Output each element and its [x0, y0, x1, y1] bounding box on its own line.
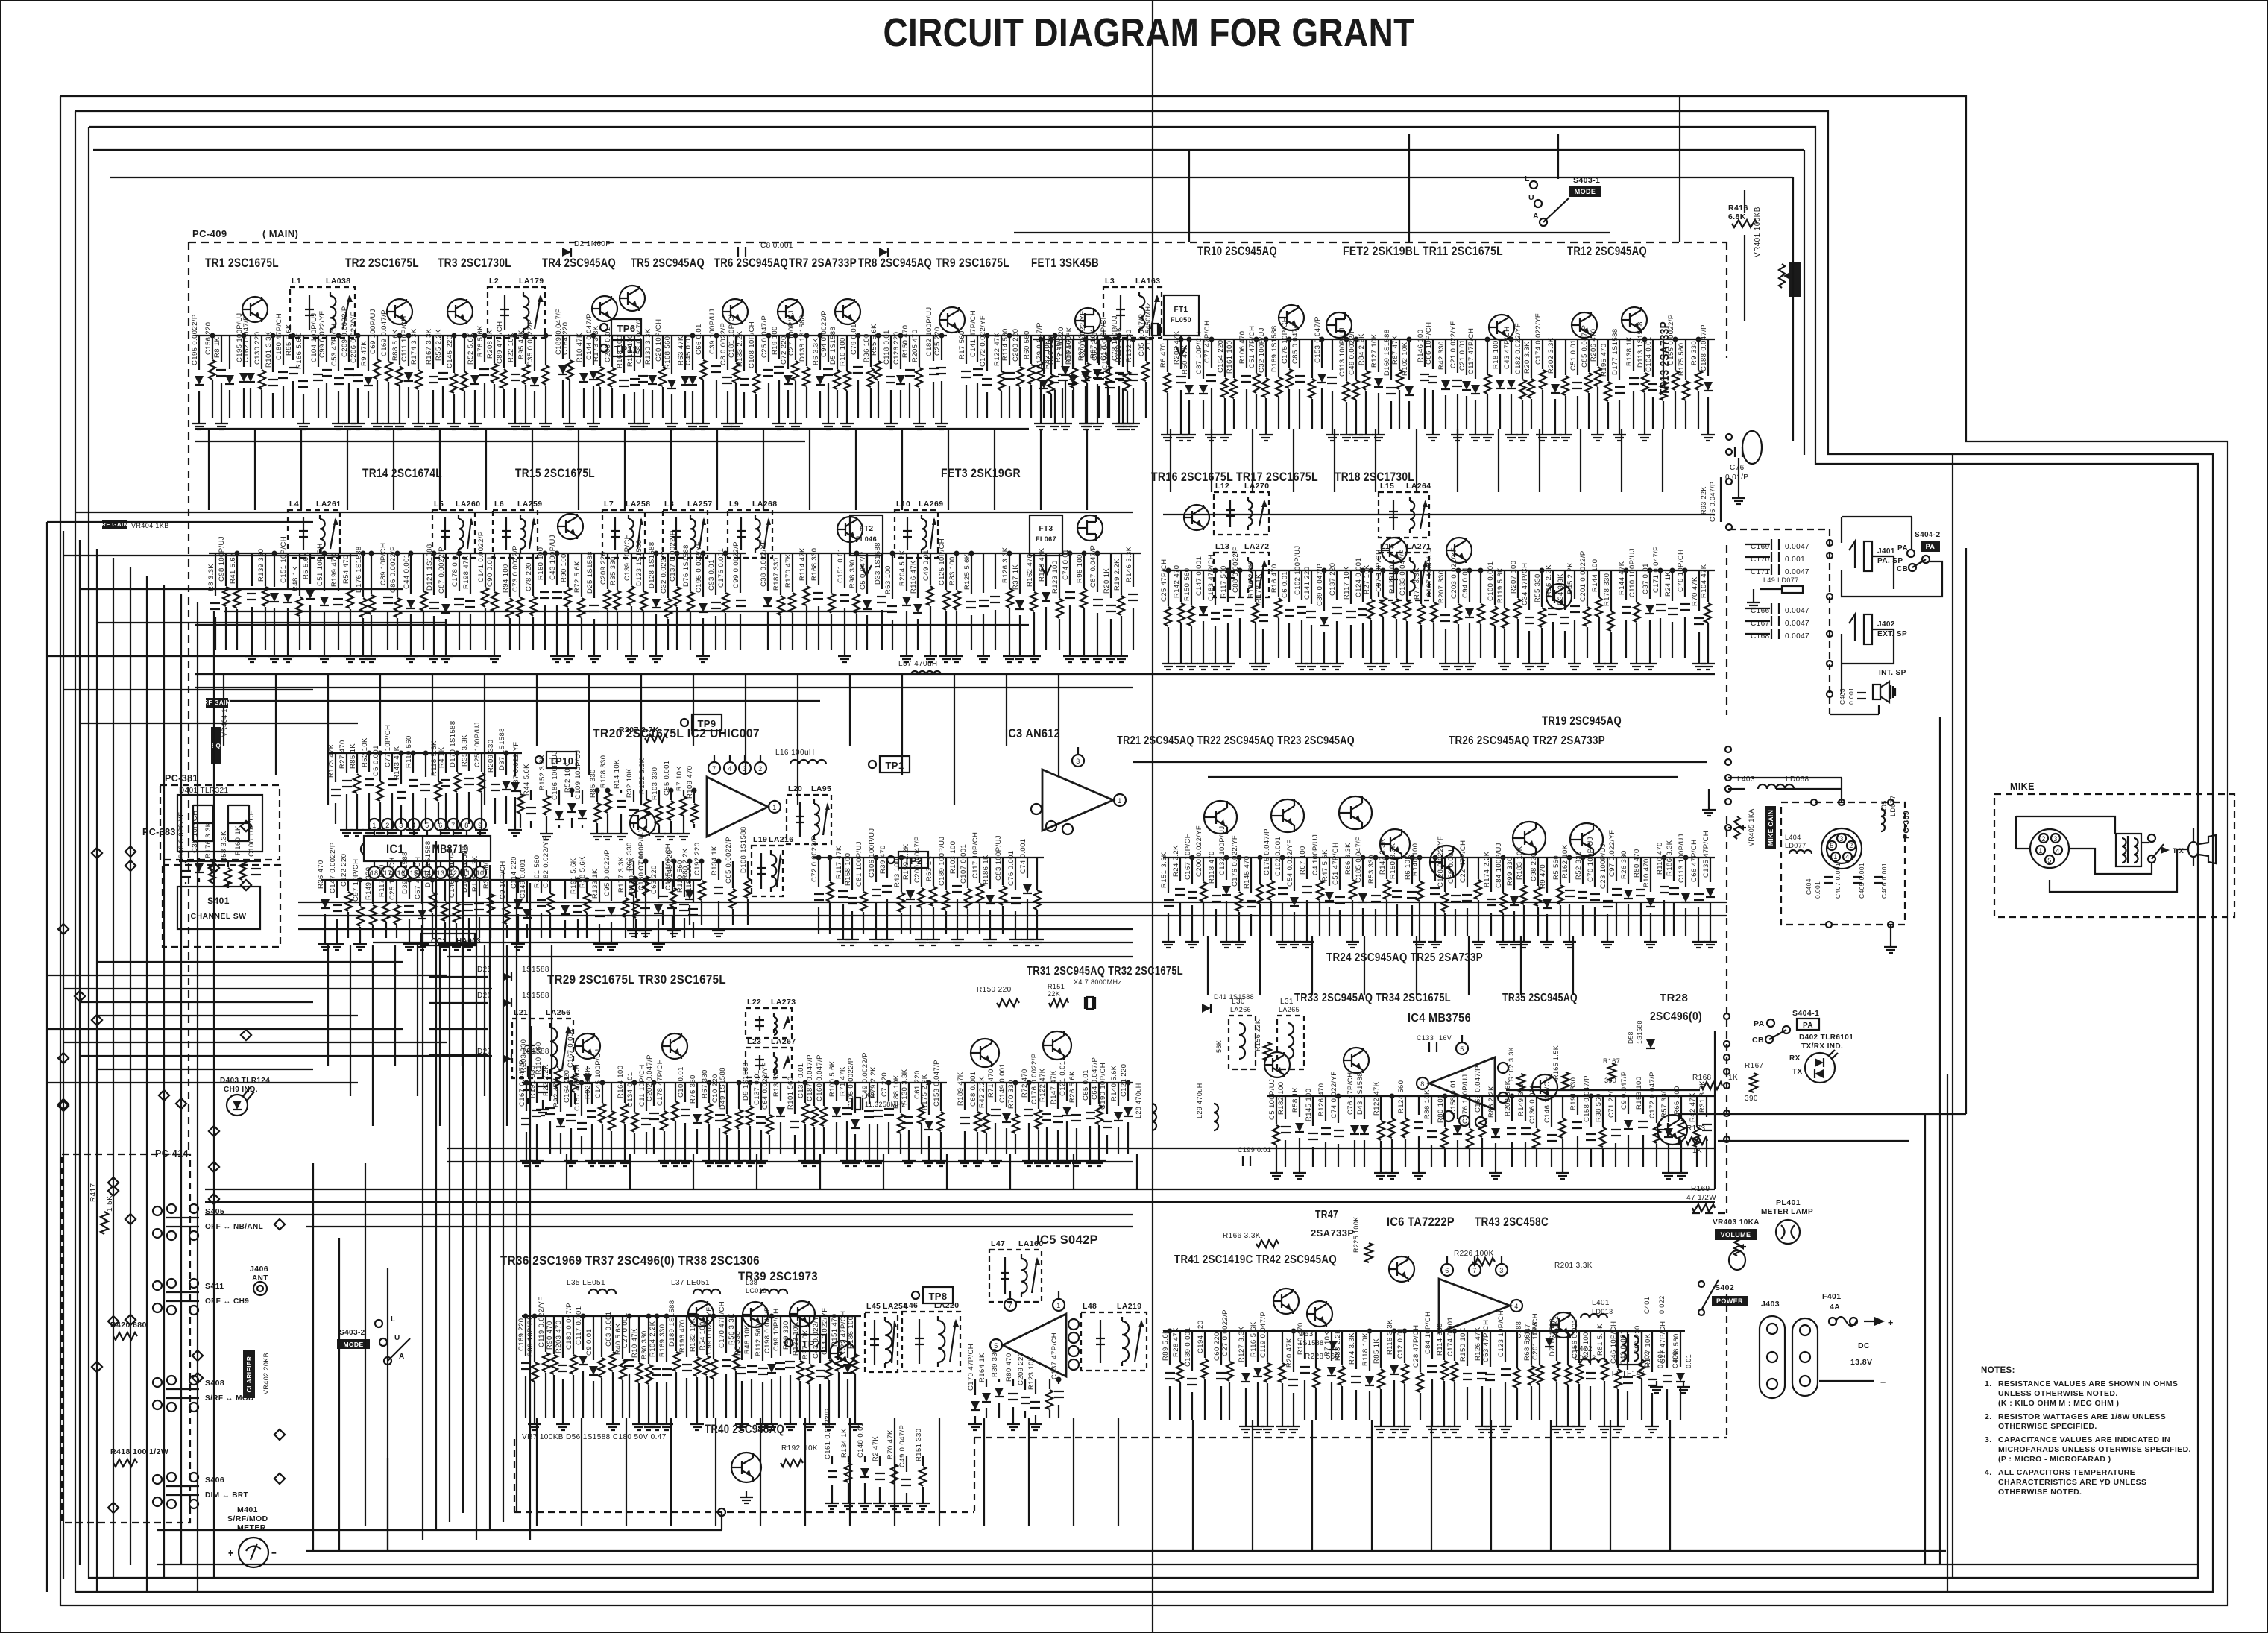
svg-text:C98 220: C98 220 — [1530, 852, 1538, 881]
svg-text:R145 470: R145 470 — [1243, 856, 1251, 889]
svg-text:1: 1 — [1056, 1302, 1060, 1309]
svg-text:U: U — [394, 1334, 400, 1342]
svg-text:R90 470: R90 470 — [546, 1321, 554, 1350]
svg-text:D41 1S1588: D41 1S1588 — [1214, 993, 1254, 1001]
svg-text:R150 470: R150 470 — [901, 325, 910, 358]
svg-text:C135 47P/CH: C135 47P/CH — [1702, 831, 1710, 878]
svg-text:C141 220: C141 220 — [1303, 567, 1311, 600]
svg-text:R37 1K: R37 1K — [1012, 564, 1020, 590]
svg-text:3: 3 — [1076, 758, 1080, 765]
svg-text:C157 47P/CH: C157 47P/CH — [573, 1064, 582, 1111]
svg-text:11.3258MHz: 11.3258MHz — [865, 1101, 905, 1108]
svg-text:C8 0.001: C8 0.001 — [760, 242, 793, 250]
svg-text:LA269: LA269 — [919, 500, 944, 509]
svg-text:C176 0.022/YF: C176 0.022/YF — [1231, 835, 1239, 887]
svg-text:R83 100: R83 100 — [948, 556, 957, 585]
svg-text:R42 330: R42 330 — [1437, 341, 1446, 370]
svg-text:C49 0.047/P: C49 0.047/P — [898, 1425, 907, 1467]
svg-text:R134 1K: R134 1K — [840, 1428, 848, 1458]
svg-text:LA268: LA268 — [752, 500, 778, 509]
svg-text:C93 0.01: C93 0.01 — [708, 559, 716, 591]
svg-text:1: 1 — [372, 822, 376, 829]
svg-text:C151 10P/CH: C151 10P/CH — [280, 536, 288, 583]
svg-text:LD077: LD077 — [1785, 842, 1806, 849]
svg-text:C165 0.047/P: C165 0.047/P — [1474, 1066, 1482, 1113]
svg-text:C74 0.001: C74 0.001 — [1019, 839, 1027, 874]
svg-text:C133: C133 — [1417, 1034, 1434, 1042]
svg-text:R37 3.3K: R37 3.3K — [1077, 329, 1086, 361]
svg-text:R178 1K: R178 1K — [1255, 573, 1263, 603]
svg-text:R32 10K: R32 10K — [626, 768, 634, 798]
svg-text:L403: L403 — [1737, 775, 1755, 784]
svg-text:C407 0.001: C407 0.001 — [1834, 863, 1842, 899]
svg-text:22K: 22K — [1048, 990, 1060, 998]
svg-text:C44 0.001: C44 0.001 — [403, 554, 411, 589]
svg-text:L20: L20 — [788, 784, 802, 793]
svg-text:R182 100: R182 100 — [1277, 1082, 1285, 1115]
svg-text:R195 470: R195 470 — [1600, 344, 1608, 377]
svg-text:R20 3.3K: R20 3.3K — [1523, 342, 1531, 374]
svg-text:C95 0.0022/P: C95 0.0022/P — [603, 849, 611, 896]
svg-text:MIKE GAIN: MIKE GAIN — [1767, 810, 1774, 846]
svg-text:TR36 2SC1969 TR37 2SC496(0): TR36 2SC1969 TR37 2SC496(0) TR38 2SC1306 — [500, 1254, 760, 1268]
svg-text:L8: L8 — [664, 500, 674, 509]
svg-text:C188 0.047/P: C188 0.047/P — [1700, 324, 1708, 371]
svg-text:D123 1S1588: D123 1S1588 — [635, 539, 643, 586]
svg-text:L35 LE051: L35 LE051 — [567, 1279, 605, 1287]
svg-text:LA258: LA258 — [626, 500, 651, 509]
svg-text:IC3 AN612: IC3 AN612 — [1005, 727, 1060, 740]
svg-text:R167: R167 — [1603, 1057, 1620, 1065]
svg-text:VR405 1KA: VR405 1KA — [1748, 808, 1755, 846]
svg-text:L28 470uH: L28 470uH — [1135, 1083, 1142, 1118]
svg-text:D184 1S1588: D184 1S1588 — [461, 846, 469, 893]
svg-text:R164 1K: R164 1K — [978, 1353, 986, 1382]
svg-text:L23: L23 — [747, 1037, 761, 1046]
svg-text:C10 0.01: C10 0.01 — [677, 1066, 685, 1098]
svg-text:C172 0.022/YF: C172 0.022/YF — [979, 315, 987, 367]
svg-text:R48 1K: R48 1K — [292, 566, 300, 591]
svg-text:PA: PA — [1803, 1022, 1813, 1030]
svg-text:R109 470: R109 470 — [686, 766, 694, 799]
svg-text:1: 1 — [772, 804, 776, 811]
svg-text:R104 2.2K: R104 2.2K — [649, 1321, 657, 1357]
svg-text:C21 0.022/YF: C21 0.022/YF — [1449, 321, 1458, 368]
svg-text:C189 100P/UJ: C189 100P/UJ — [938, 836, 946, 886]
svg-text:R207 2.7K: R207 2.7K — [619, 726, 659, 734]
svg-text:C43 100P/UJ: C43 100P/UJ — [549, 535, 557, 580]
svg-text:7: 7 — [712, 765, 716, 773]
svg-text:R204 5.6K: R204 5.6K — [898, 550, 907, 586]
svg-text:R153 100: R153 100 — [1635, 1077, 1643, 1110]
svg-text:2: 2 — [1849, 842, 1853, 849]
svg-text:C108 10P/CH: C108 10P/CH — [748, 321, 756, 368]
svg-text:L6: L6 — [494, 500, 504, 509]
svg-text:R146 3.3K: R146 3.3K — [1125, 546, 1133, 582]
svg-text:R67 100: R67 100 — [1299, 846, 1307, 875]
svg-text:5: 5 — [1460, 1045, 1464, 1053]
svg-text:R126 470: R126 470 — [1317, 1083, 1326, 1116]
svg-text:C100 0.001: C100 0.001 — [1487, 561, 1495, 601]
svg-text:R175 560: R175 560 — [1678, 343, 1686, 376]
svg-text:5: 5 — [2047, 857, 2051, 864]
svg-text:R57 330: R57 330 — [1660, 1089, 1669, 1118]
svg-text:TR29 2SC1675L TR30 2SC1675L: TR29 2SC1675L TR30 2SC1675L — [547, 973, 726, 987]
svg-text:TR28: TR28 — [1660, 992, 1688, 1004]
svg-text:R89 5.6K: R89 5.6K — [1162, 1329, 1170, 1361]
svg-text:C121 0.01: C121 0.01 — [1059, 1061, 1067, 1096]
svg-text:R86 2.2K: R86 2.2K — [1487, 1086, 1496, 1118]
svg-text:R151 330: R151 330 — [915, 1429, 923, 1461]
svg-text:C137 100P/UJ: C137 100P/UJ — [1426, 547, 1434, 597]
svg-text:J402: J402 — [1877, 620, 1895, 629]
svg-text:C87 10P/CH: C87 10P/CH — [1195, 332, 1203, 374]
svg-text:C54 0.022/YF: C54 0.022/YF — [1286, 840, 1294, 887]
svg-text:FET2 2SK19BL TR11 2SC1675L: FET2 2SK19BL TR11 2SC1675L — [1343, 245, 1503, 258]
svg-text:R10 47K: R10 47K — [631, 1328, 639, 1358]
svg-text:FET3 2SK19GR: FET3 2SK19GR — [941, 467, 1021, 480]
svg-text:ANT: ANT — [252, 1274, 268, 1283]
svg-text:C32 0.022/YF: C32 0.022/YF — [660, 547, 668, 594]
svg-text:R35 3.3K: R35 3.3K — [461, 734, 469, 767]
svg-text:( MAIN): ( MAIN) — [262, 228, 298, 239]
svg-text:R164 100: R164 100 — [617, 1066, 625, 1098]
svg-text:C186 100P/UJ: C186 100P/UJ — [551, 750, 559, 800]
svg-text:TR2 2SC1675L: TR2 2SC1675L — [345, 257, 419, 270]
svg-text:R191 330: R191 330 — [1569, 1077, 1578, 1110]
svg-text:4: 4 — [728, 765, 731, 773]
svg-text:C64 0.047/P: C64 0.047/P — [1091, 1057, 1099, 1100]
svg-text:R47 5.6K: R47 5.6K — [1321, 849, 1329, 881]
svg-text:R90 100: R90 100 — [560, 553, 568, 582]
svg-text:C76 0.047/P: C76 0.047/P — [1709, 482, 1716, 522]
svg-text:LA270: LA270 — [1244, 482, 1270, 491]
svg-text:L37 LE051: L37 LE051 — [671, 1279, 710, 1287]
svg-text:C85 0.047/P: C85 0.047/P — [1291, 321, 1300, 364]
svg-text:C182 0.022/YF: C182 0.022/YF — [1514, 323, 1522, 374]
svg-text:TR35 2SC945AQ: TR35 2SC945AQ — [1502, 992, 1578, 1004]
svg-text:R151: R151 — [1048, 983, 1065, 990]
svg-text:R178 330: R178 330 — [1603, 573, 1611, 606]
svg-text:C35 0.0022/P: C35 0.0022/P — [526, 319, 535, 366]
svg-text:1S1588: 1S1588 — [522, 966, 549, 974]
svg-text:R44 5.6K: R44 5.6K — [523, 764, 531, 796]
svg-text:PA. SP: PA. SP — [1877, 557, 1903, 565]
svg-text:390: 390 — [1745, 1095, 1758, 1103]
svg-text:FT3: FT3 — [1039, 525, 1053, 533]
svg-text:R8 3.3K: R8 3.3K — [207, 564, 215, 591]
svg-text:C90 0.01: C90 0.01 — [486, 556, 494, 587]
svg-text:R71 47K: R71 47K — [839, 1066, 847, 1096]
svg-text:L15: L15 — [1380, 482, 1394, 491]
svg-text:D58: D58 — [1627, 1031, 1634, 1044]
svg-text:D177 1S1588: D177 1S1588 — [1611, 328, 1619, 375]
svg-text:PA: PA — [1926, 543, 1935, 550]
svg-text:C180 0.047/P: C180 0.047/P — [565, 1303, 573, 1350]
svg-text:PA: PA — [1897, 544, 1908, 553]
svg-text:C43 0.022/YF: C43 0.022/YF — [812, 1312, 820, 1359]
svg-text:R199 47K: R199 47K — [330, 553, 338, 587]
svg-text:C164 220: C164 220 — [563, 1070, 571, 1103]
svg-text:FET1 3SK45B: FET1 3SK45B — [1031, 257, 1099, 270]
svg-text:R187 330: R187 330 — [772, 558, 781, 591]
svg-text:VR404 1KB: VR404 1KB — [131, 522, 169, 529]
svg-text:C406 0.001: C406 0.001 — [1880, 863, 1888, 899]
svg-text:C192 220: C192 220 — [693, 843, 702, 875]
svg-text:C25 47P/CH: C25 47P/CH — [1160, 559, 1168, 602]
svg-text:LA038: LA038 — [326, 277, 351, 286]
svg-text:R98 330: R98 330 — [848, 559, 857, 588]
svg-text:D121 1S1588: D121 1S1588 — [426, 544, 434, 591]
svg-text:16V: 16V — [1439, 1034, 1452, 1042]
svg-text:C174 0.022/YF: C174 0.022/YF — [1534, 313, 1543, 365]
svg-text:R76 5.6K: R76 5.6K — [476, 325, 485, 357]
svg-text:6: 6 — [1445, 1267, 1449, 1274]
svg-text:R165 1.5K: R165 1.5K — [1552, 1045, 1560, 1080]
svg-text:R144 100: R144 100 — [1591, 559, 1599, 592]
svg-text:C182 100P/UJ: C182 100P/UJ — [925, 306, 933, 356]
svg-text:TR5 2SC945AQ: TR5 2SC945AQ — [631, 257, 705, 270]
svg-text:R118 470: R118 470 — [1208, 851, 1216, 884]
svg-text:PC-414: PC-414 — [155, 1148, 189, 1159]
svg-text:C139 10P/CH: C139 10P/CH — [623, 534, 631, 581]
svg-text:R55 2.2K: R55 2.2K — [435, 329, 443, 361]
svg-text:C6 0.01: C6 0.01 — [1281, 571, 1289, 598]
svg-text:C70 100P/UJ: C70 100P/UJ — [1587, 837, 1595, 882]
svg-text:R48 10K: R48 10K — [743, 1324, 752, 1354]
svg-text:R174 2.2K: R174 2.2K — [1483, 851, 1491, 887]
svg-text:R117 10K: R117 10K — [1343, 566, 1351, 600]
svg-text:C178 0.01: C178 0.01 — [451, 552, 459, 587]
svg-text:C83 100P/UJ: C83 100P/UJ — [995, 835, 1003, 881]
svg-text:C97 0.022/YF: C97 0.022/YF — [1608, 830, 1616, 877]
svg-text:R192: R192 — [781, 1444, 801, 1453]
svg-text:LA163: LA163 — [1135, 277, 1161, 286]
svg-text:C71 220: C71 220 — [1607, 1089, 1616, 1118]
svg-text:R116 47K: R116 47K — [910, 560, 918, 594]
svg-text:R133 1K: R133 1K — [591, 869, 599, 899]
svg-text:C49 0.01: C49 0.01 — [922, 550, 930, 581]
svg-text:LA259: LA259 — [517, 500, 543, 509]
svg-text:L: L — [1525, 174, 1530, 183]
svg-text:LC019: LC019 — [746, 1287, 767, 1294]
svg-text:D138 1S1588: D138 1S1588 — [798, 315, 807, 362]
svg-text:C145 220: C145 220 — [446, 336, 454, 368]
svg-text:R42 2.2K: R42 2.2K — [978, 1076, 986, 1108]
svg-text:LA266: LA266 — [1230, 1006, 1251, 1013]
svg-text:L1: L1 — [292, 277, 301, 286]
svg-text:C169 220: C169 220 — [517, 1318, 526, 1351]
svg-text:C200 0.022/YF: C200 0.022/YF — [1195, 825, 1203, 877]
svg-text:0.0047: 0.0047 — [1785, 568, 1809, 576]
svg-text:D2 1N60P: D2 1N60P — [574, 240, 611, 248]
svg-text:7: 7 — [1008, 1302, 1012, 1309]
svg-text:R93 22K: R93 22K — [1700, 486, 1707, 515]
svg-text:R38 560: R38 560 — [1595, 1093, 1603, 1122]
svg-text:TR24 2SC945AQ TR25 2SA733P: TR24 2SC945AQ TR25 2SA733P — [1326, 951, 1483, 964]
svg-text:R6 470: R6 470 — [1159, 343, 1168, 368]
svg-text:C87 0.022/YF: C87 0.022/YF — [512, 742, 520, 789]
svg-text:C27 100P/UJ: C27 100P/UJ — [787, 310, 796, 356]
svg-text:D5 1S1588: D5 1S1588 — [829, 327, 837, 365]
svg-text:LA95: LA95 — [811, 784, 831, 793]
svg-text:L13: L13 — [1215, 542, 1229, 551]
svg-text:R77 3.3K: R77 3.3K — [1413, 567, 1421, 600]
svg-text:D39 1S1588: D39 1S1588 — [401, 852, 409, 894]
svg-text:D33 1S1588: D33 1S1588 — [874, 542, 882, 585]
svg-text:0.001: 0.001 — [1848, 688, 1855, 705]
svg-text:C117 10P/CH: C117 10P/CH — [971, 832, 980, 878]
svg-text:R80 100: R80 100 — [1437, 1094, 1445, 1123]
svg-text:C73 0.0022/P: C73 0.0022/P — [511, 545, 520, 592]
svg-text:C169 0.047/P: C169 0.047/P — [380, 309, 388, 356]
svg-text:C158 0.047/P: C158 0.047/P — [1583, 1075, 1591, 1122]
svg-text:C60 220: C60 220 — [1213, 1332, 1221, 1361]
svg-text:C153 0.047/P: C153 0.047/P — [933, 1060, 941, 1107]
svg-text:C164 220: C164 220 — [561, 322, 570, 355]
svg-text:R168 330: R168 330 — [810, 548, 819, 581]
svg-text:R99 330: R99 330 — [1506, 857, 1514, 886]
svg-text:R101 560: R101 560 — [533, 855, 541, 888]
svg-text:C122 220: C122 220 — [340, 854, 348, 887]
svg-text:C170 47P/CH: C170 47P/CH — [967, 1344, 975, 1391]
svg-text:0.0047: 0.0047 — [1785, 632, 1809, 641]
svg-text:R41 5.6K: R41 5.6K — [229, 552, 237, 584]
svg-text:CB: CB — [1897, 565, 1908, 573]
svg-text:L48: L48 — [1083, 1302, 1097, 1311]
svg-text:R19 100: R19 100 — [771, 326, 779, 355]
svg-text:R10 47K: R10 47K — [576, 333, 584, 362]
svg-text:LA264: LA264 — [1406, 482, 1431, 491]
svg-text:S404-2: S404-2 — [1915, 531, 1941, 539]
svg-text:C113 100P/UJ: C113 100P/UJ — [1338, 327, 1346, 377]
svg-text:R34 3.3K: R34 3.3K — [1557, 573, 1565, 605]
svg-text:D170 1S1588: D170 1S1588 — [449, 720, 457, 767]
svg-text:TR8 2SC945AQ: TR8 2SC945AQ — [858, 257, 932, 270]
svg-text:R94 100: R94 100 — [502, 564, 510, 593]
svg-text:LA160: LA160 — [1018, 1239, 1044, 1248]
svg-text:C175 0.047/P: C175 0.047/P — [1263, 828, 1271, 875]
svg-text:C85 0.047/P: C85 0.047/P — [1138, 314, 1146, 356]
svg-text:R191 330: R191 330 — [529, 1066, 537, 1098]
svg-text:C49 0.0022/P: C49 0.0022/P — [1348, 328, 1356, 375]
svg-text:R6 560: R6 560 — [1054, 338, 1062, 362]
svg-text:C65 220: C65 220 — [1091, 332, 1099, 361]
svg-text:LA257: LA257 — [687, 500, 713, 509]
svg-text:C102 100P/UJ: C102 100P/UJ — [1294, 545, 1302, 595]
svg-text:TR19 2SC945AQ: TR19 2SC945AQ — [1542, 714, 1622, 728]
svg-text:CHANNEL SW: CHANNEL SW — [191, 912, 247, 921]
svg-text:C107 0.001: C107 0.001 — [960, 844, 968, 884]
svg-text:TR12 2SC945AQ: TR12 2SC945AQ — [1567, 245, 1647, 258]
svg-text:A: A — [399, 1353, 405, 1361]
svg-text:EXT. SP: EXT. SP — [1877, 630, 1907, 638]
svg-text:R198 47K: R198 47K — [462, 555, 470, 589]
svg-text:C20 10P/CH: C20 10P/CH — [655, 319, 663, 362]
svg-text:R196 470: R196 470 — [678, 1320, 687, 1353]
svg-text:C111 10P/CH: C111 10P/CH — [400, 315, 409, 362]
svg-text:C130 220: C130 220 — [253, 332, 262, 365]
svg-text:C6 0.001: C6 0.001 — [372, 745, 380, 776]
svg-text:R112 560: R112 560 — [755, 1324, 763, 1356]
svg-text:C84 100P/UJ: C84 100P/UJ — [1495, 843, 1503, 888]
svg-text:C146 10P/CH: C146 10P/CH — [1543, 1076, 1552, 1123]
svg-text:C172 0.047/P: C172 0.047/P — [1648, 1072, 1657, 1118]
svg-text:C51 10P/CH: C51 10P/CH — [316, 544, 324, 586]
svg-text:R104 47K: R104 47K — [1700, 564, 1708, 598]
svg-text:L31: L31 — [1280, 998, 1294, 1006]
svg-text:C77 47P/CH: C77 47P/CH — [1203, 321, 1212, 363]
svg-text:C160 0.047/P: C160 0.047/P — [816, 1054, 824, 1101]
svg-text:TP1: TP1 — [885, 760, 904, 771]
svg-text:LA272: LA272 — [1244, 542, 1270, 551]
svg-text:C118 0.01: C118 0.01 — [883, 330, 891, 365]
svg-text:R170 47K: R170 47K — [784, 553, 793, 588]
svg-text:C23 100P/UJ: C23 100P/UJ — [1599, 843, 1607, 889]
svg-text:R9 470: R9 470 — [1539, 864, 1547, 889]
svg-text:R176 3.3K: R176 3.3K — [204, 822, 212, 858]
svg-text:C45 0.01: C45 0.01 — [684, 334, 693, 365]
svg-text:L5: L5 — [434, 500, 444, 509]
svg-text:1: 1 — [2038, 847, 2042, 855]
svg-text:TX/RX IND.: TX/RX IND. — [1801, 1042, 1843, 1051]
svg-text:0.0047: 0.0047 — [1785, 607, 1809, 615]
svg-text:TR6 2SC945AQ: TR6 2SC945AQ — [714, 257, 788, 270]
svg-text:IC5 S042P: IC5 S042P — [1036, 1233, 1098, 1247]
svg-text:D403 TLR124: D403 TLR124 — [220, 1077, 270, 1085]
svg-text:R85 330: R85 330 — [589, 769, 597, 798]
svg-text:3: 3 — [743, 765, 746, 773]
svg-text:R116 5.6K: R116 5.6K — [1250, 1321, 1258, 1357]
svg-text:R16 100: R16 100 — [839, 337, 847, 366]
svg-text:C25 100P/UJ: C25 100P/UJ — [473, 722, 482, 767]
svg-text:R186 100: R186 100 — [847, 1316, 855, 1349]
svg-text:5: 5 — [1830, 842, 1833, 849]
svg-text:3: 3 — [1839, 835, 1843, 843]
svg-text:R26 5.6K: R26 5.6K — [1068, 1071, 1077, 1103]
svg-text:C66 0.01: C66 0.01 — [695, 324, 703, 355]
svg-text:R58 1K: R58 1K — [1291, 1087, 1300, 1113]
svg-text:R123 10K: R123 10K — [1027, 1356, 1036, 1390]
svg-text:FL050: FL050 — [1171, 316, 1191, 324]
svg-text:C76: C76 — [1730, 464, 1745, 472]
svg-text:CIRCUIT DIAGRAM FOR GRANT: CIRCUIT DIAGRAM FOR GRANT — [883, 10, 1415, 55]
svg-text:LA256: LA256 — [546, 1008, 571, 1017]
svg-text:C76 47P/CH: C76 47P/CH — [1346, 1072, 1355, 1115]
svg-text:R152 3.3K: R152 3.3K — [638, 758, 646, 794]
svg-text:C145 220: C145 220 — [666, 850, 674, 883]
svg-text:R103 330: R103 330 — [651, 767, 659, 800]
svg-text:DIM ↔ BRT: DIM ↔ BRT — [205, 1491, 248, 1500]
svg-text:C89 10P/CH: C89 10P/CH — [379, 543, 388, 585]
svg-text:C63 0.001: C63 0.001 — [605, 1312, 613, 1347]
svg-text:C147 0.0022/P: C147 0.0022/P — [329, 842, 337, 893]
svg-text:L3: L3 — [1105, 277, 1115, 286]
svg-text:R58 3.3K: R58 3.3K — [220, 831, 228, 863]
svg-text:C145 100P/UJ: C145 100P/UJ — [594, 1048, 602, 1098]
svg-text:R2 47K: R2 47K — [872, 1436, 880, 1461]
svg-text:R80 470: R80 470 — [1633, 849, 1641, 878]
svg-text:C183 47P/CH: C183 47P/CH — [1207, 554, 1215, 601]
svg-text:C32 100P/UJ: C32 100P/UJ — [1258, 327, 1266, 373]
svg-text:METER: METER — [237, 1523, 266, 1532]
svg-text:C37 0.01: C37 0.01 — [1642, 563, 1650, 594]
svg-text:C98 100P/UJ: C98 100P/UJ — [218, 536, 226, 582]
svg-text:C203 0.022/YF: C203 0.022/YF — [1450, 547, 1458, 599]
svg-text:1: 1 — [1118, 797, 1121, 805]
svg-text:R202 3.3K: R202 3.3K — [1547, 337, 1555, 374]
svg-text:R174 3.3K: R174 3.3K — [410, 328, 418, 365]
